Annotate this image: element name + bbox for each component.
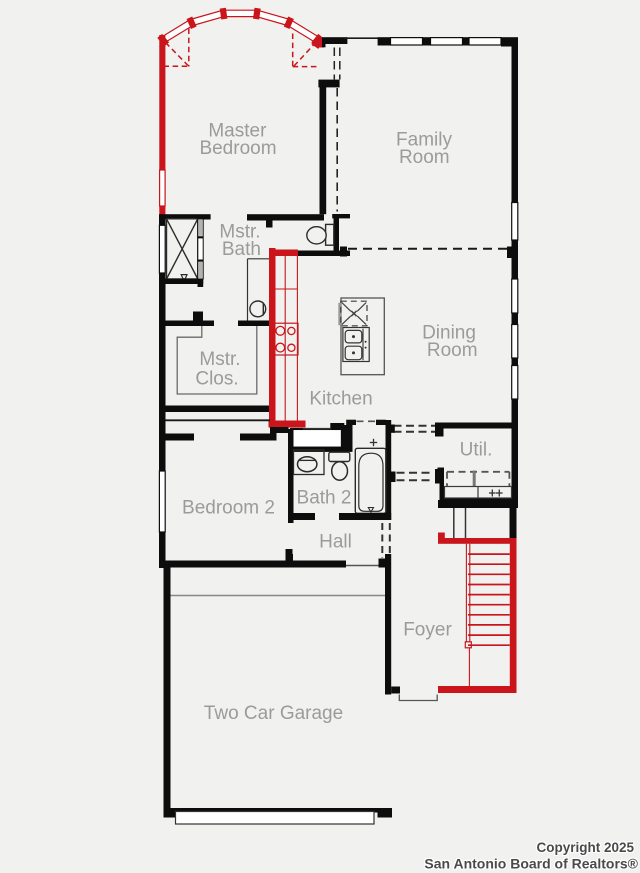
svg-text:Kitchen: Kitchen [309, 388, 372, 409]
svg-text:Bath 2: Bath 2 [297, 488, 352, 509]
svg-text:Hall: Hall [319, 532, 352, 553]
svg-text:San Antonio Board of Realtors®: San Antonio Board of Realtors® [424, 856, 638, 872]
svg-text:Foyer: Foyer [403, 620, 452, 641]
svg-text:Util.: Util. [460, 439, 493, 460]
svg-text:Copyright 2025: Copyright 2025 [536, 840, 634, 855]
svg-text:Room: Room [427, 340, 478, 361]
svg-text:Mstr.: Mstr. [199, 349, 240, 370]
svg-text:Clos.: Clos. [195, 369, 238, 390]
svg-text:Bedroom: Bedroom [199, 138, 276, 159]
svg-text:Room: Room [399, 147, 450, 168]
svg-text:Two Car Garage: Two Car Garage [204, 703, 343, 724]
svg-text:Bedroom 2: Bedroom 2 [182, 497, 275, 518]
svg-text:Bath: Bath [222, 239, 261, 260]
